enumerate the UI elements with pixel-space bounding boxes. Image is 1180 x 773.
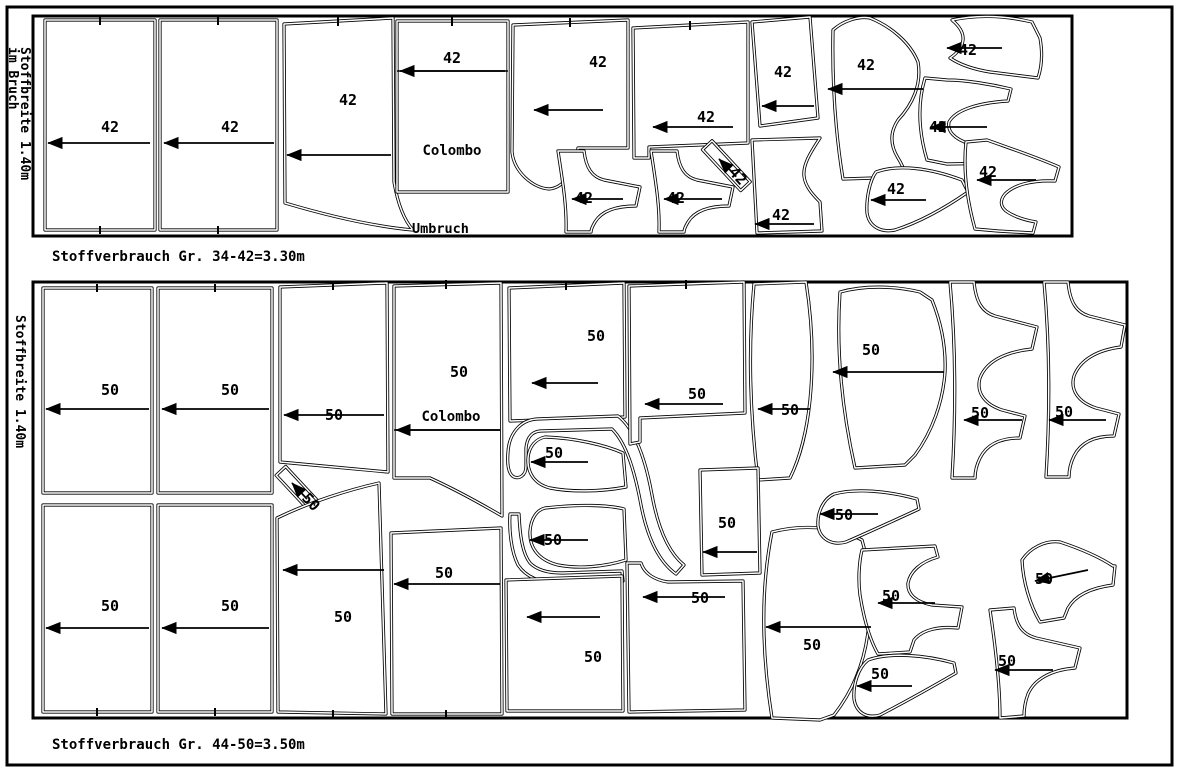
fabric-fold-note: im Bruch — [5, 47, 20, 110]
pattern-piece — [633, 22, 748, 158]
piece-size-label: 50 — [101, 381, 119, 399]
pattern-piece — [391, 528, 502, 714]
fabric-usage-caption-top: Stoffverbrauch Gr. 34-42=3.30m — [52, 249, 305, 265]
piece-size-label: 42 — [887, 180, 905, 198]
pattern-piece — [158, 505, 272, 712]
cutting-layout-page: 42424242424242424242424242424242 Colombo… — [0, 0, 1180, 773]
piece-size-label: 50 — [871, 665, 889, 683]
piece-size-label: 50 — [221, 597, 239, 615]
piece-size-label: 50 — [1055, 403, 1073, 421]
piece-size-label: 42 — [857, 56, 875, 74]
brand-label-top: Colombo — [422, 143, 481, 159]
fold-label: Umbruch — [412, 221, 469, 237]
piece-size-label: 50 — [998, 652, 1016, 670]
piece-size-label: 42 — [697, 108, 715, 126]
piece-size-label: 50 — [781, 401, 799, 419]
pattern-piece — [397, 21, 508, 192]
piece-size-label: 50 — [435, 564, 453, 582]
piece-size-label: 50 — [862, 341, 880, 359]
piece-size-label: 42 — [959, 41, 977, 59]
piece-size-label: 50 — [688, 385, 706, 403]
piece-size-label: 50 — [584, 648, 602, 666]
piece-size-label: 42 — [339, 91, 357, 109]
piece-size-label: 50 — [835, 506, 853, 524]
piece-size-label: 50 — [691, 589, 709, 607]
brand-label-bottom: Colombo — [421, 409, 480, 425]
fabric-width-label-bottom: Stoffbreite 1.40m — [12, 315, 27, 448]
pattern-piece — [627, 563, 745, 712]
piece-size-label: 42 — [221, 118, 239, 136]
piece-size-label: 42 — [443, 49, 461, 67]
cutting-layout-drawing: 42424242424242424242424242424242 Colombo… — [0, 0, 1180, 773]
pattern-piece — [160, 20, 277, 230]
piece-size-label: 42 — [101, 118, 119, 136]
pattern-piece — [506, 576, 623, 711]
fabric-usage-caption-bottom: Stoffverbrauch Gr. 44-50=3.50m — [52, 737, 305, 753]
piece-size-label: 42 — [774, 63, 792, 81]
piece-size-label: 50 — [221, 381, 239, 399]
piece-size-label: 50 — [450, 363, 468, 381]
piece-size-label: 42 — [772, 206, 790, 224]
piece-size-label: 50 — [803, 636, 821, 654]
piece-size-label: 50 — [101, 597, 119, 615]
pattern-piece — [280, 283, 388, 472]
pattern-piece — [43, 288, 152, 493]
piece-size-label: 42 — [575, 189, 593, 207]
pattern-piece — [509, 283, 625, 421]
piece-size-label: 42 — [589, 53, 607, 71]
piece-size-label: 42 — [979, 163, 997, 181]
pattern-piece — [43, 505, 152, 712]
pattern-piece — [158, 288, 272, 493]
piece-size-label: 50 — [334, 608, 352, 626]
pattern-piece — [277, 483, 386, 714]
piece-size-label: 42 — [667, 189, 685, 207]
piece-size-label: 50 — [718, 514, 736, 532]
piece-size-label: 50 — [587, 327, 605, 345]
piece-size-label: 50 — [545, 444, 563, 462]
pattern-piece — [284, 18, 413, 230]
